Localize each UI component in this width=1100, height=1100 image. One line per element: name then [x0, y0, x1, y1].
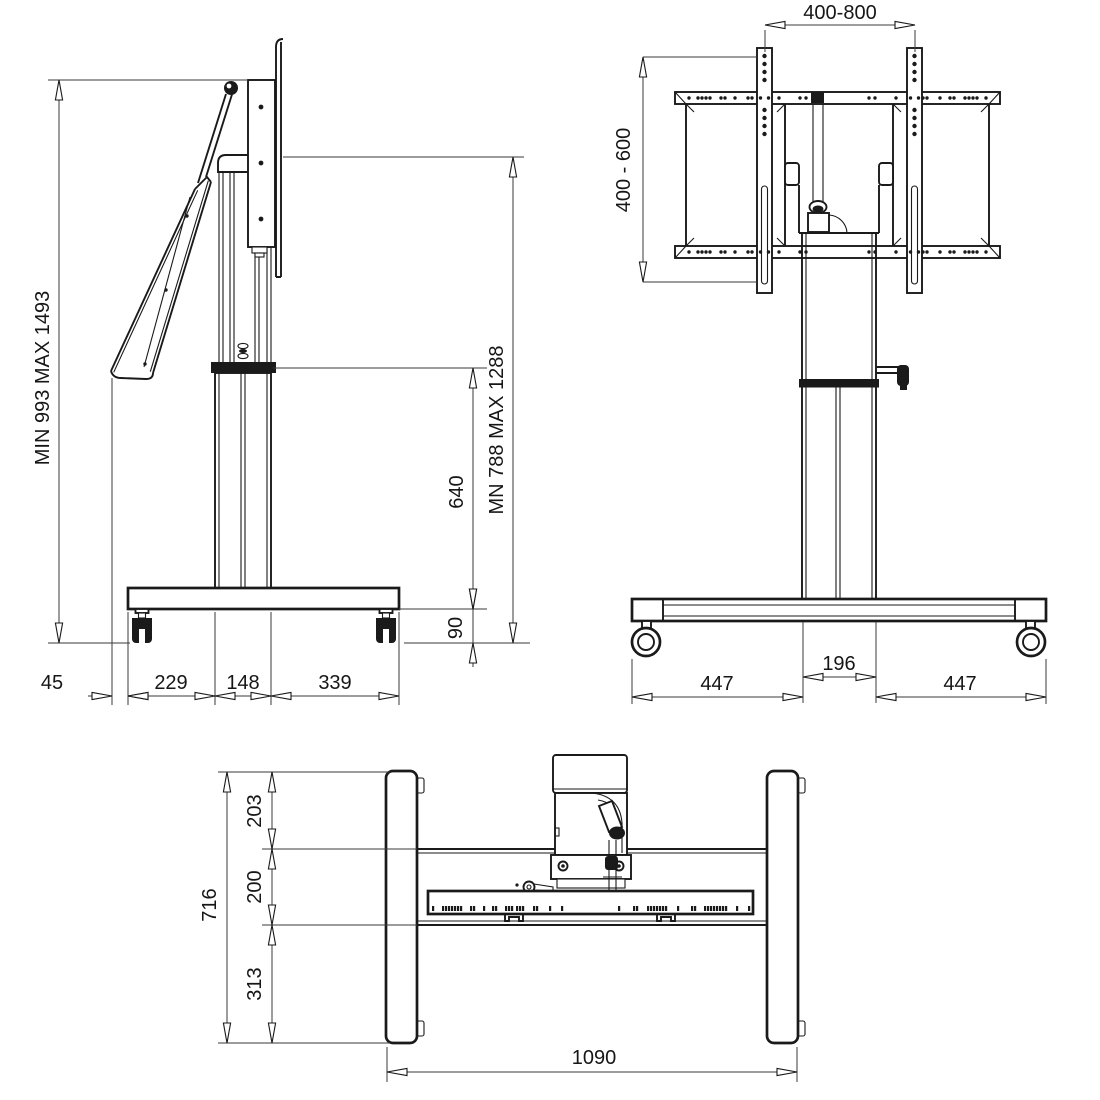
- side-view: MIN 993 MAX 1493 MN 788 MAX 1288 640 90 …: [32, 39, 530, 705]
- dim-screen-overhang: 45: [41, 672, 63, 694]
- top-view-dimensions: 716 203 200 313 1090: [199, 772, 797, 1082]
- foot-left-top: [386, 771, 424, 1043]
- foot-right-top: [767, 771, 805, 1043]
- dim-base-to-floor: 90: [445, 617, 467, 639]
- dim-column-depth: 148: [226, 672, 259, 694]
- dim-rear-section: 313: [244, 967, 266, 1000]
- dim-crossbar-depth: 200: [244, 870, 266, 903]
- technical-drawing: MIN 993 MAX 1493 MN 788 MAX 1288 640 90 …: [0, 0, 1100, 1100]
- dim-vesa-width-range: 400-800: [803, 2, 876, 24]
- dim-screen-top-height: MN 788 MAX 1288: [486, 346, 508, 515]
- dim-base-right-span: 447: [943, 673, 976, 695]
- dim-overall-width: 1090: [572, 1047, 617, 1069]
- vesa-rail-left: [757, 48, 772, 293]
- dim-front-section: 203: [244, 794, 266, 827]
- dim-base-rear-depth: 229: [154, 672, 187, 694]
- dim-column-height: 640: [446, 475, 468, 508]
- dim-total-depth: 716: [199, 888, 221, 921]
- dim-vesa-height-range: 400 - 600: [613, 128, 635, 213]
- dim-column-width: 196: [822, 653, 855, 675]
- dim-base-front-depth: 339: [318, 672, 351, 694]
- lift-mechanism-top: [551, 755, 631, 891]
- dim-base-left-span: 447: [700, 673, 733, 695]
- drawing-page: MIN 993 MAX 1493 MN 788 MAX 1288 640 90 …: [0, 0, 1100, 1100]
- top-view-linework: [386, 755, 805, 1043]
- caster-left-front: [632, 621, 660, 656]
- dim-overall-height: MIN 993 MAX 1493: [32, 291, 54, 466]
- front-view: 400-800 400 - 600 196 447 447: [613, 2, 1046, 704]
- caster-left-side: [132, 609, 152, 643]
- vesa-rail-right: [907, 48, 922, 293]
- caster-right-side: [376, 609, 396, 643]
- caster-right-front: [1017, 621, 1045, 656]
- frame-hole-row: [687, 96, 987, 253]
- side-view-linework: [111, 39, 399, 643]
- front-view-linework: [632, 48, 1046, 656]
- top-view: 716 203 200 313 1090: [199, 755, 805, 1082]
